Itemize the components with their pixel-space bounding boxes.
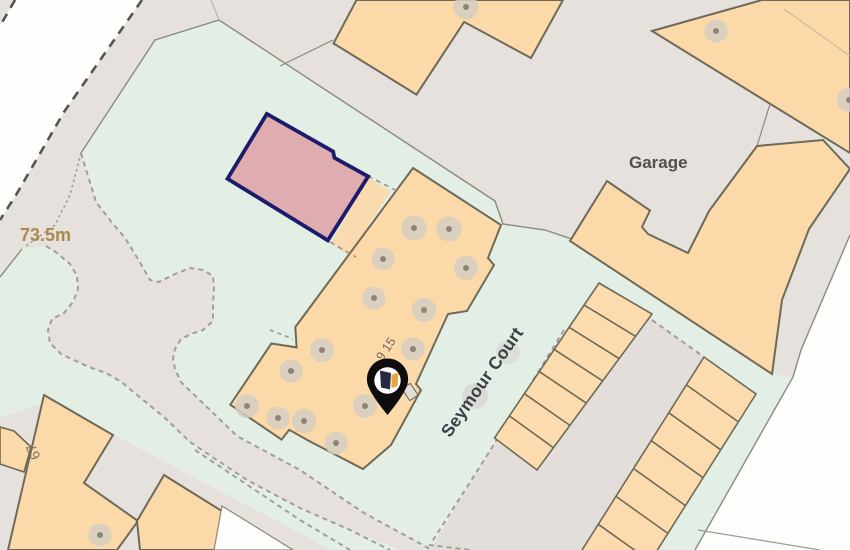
svg-text:73.5m: 73.5m	[20, 225, 71, 245]
svg-text:Garage: Garage	[629, 153, 688, 172]
